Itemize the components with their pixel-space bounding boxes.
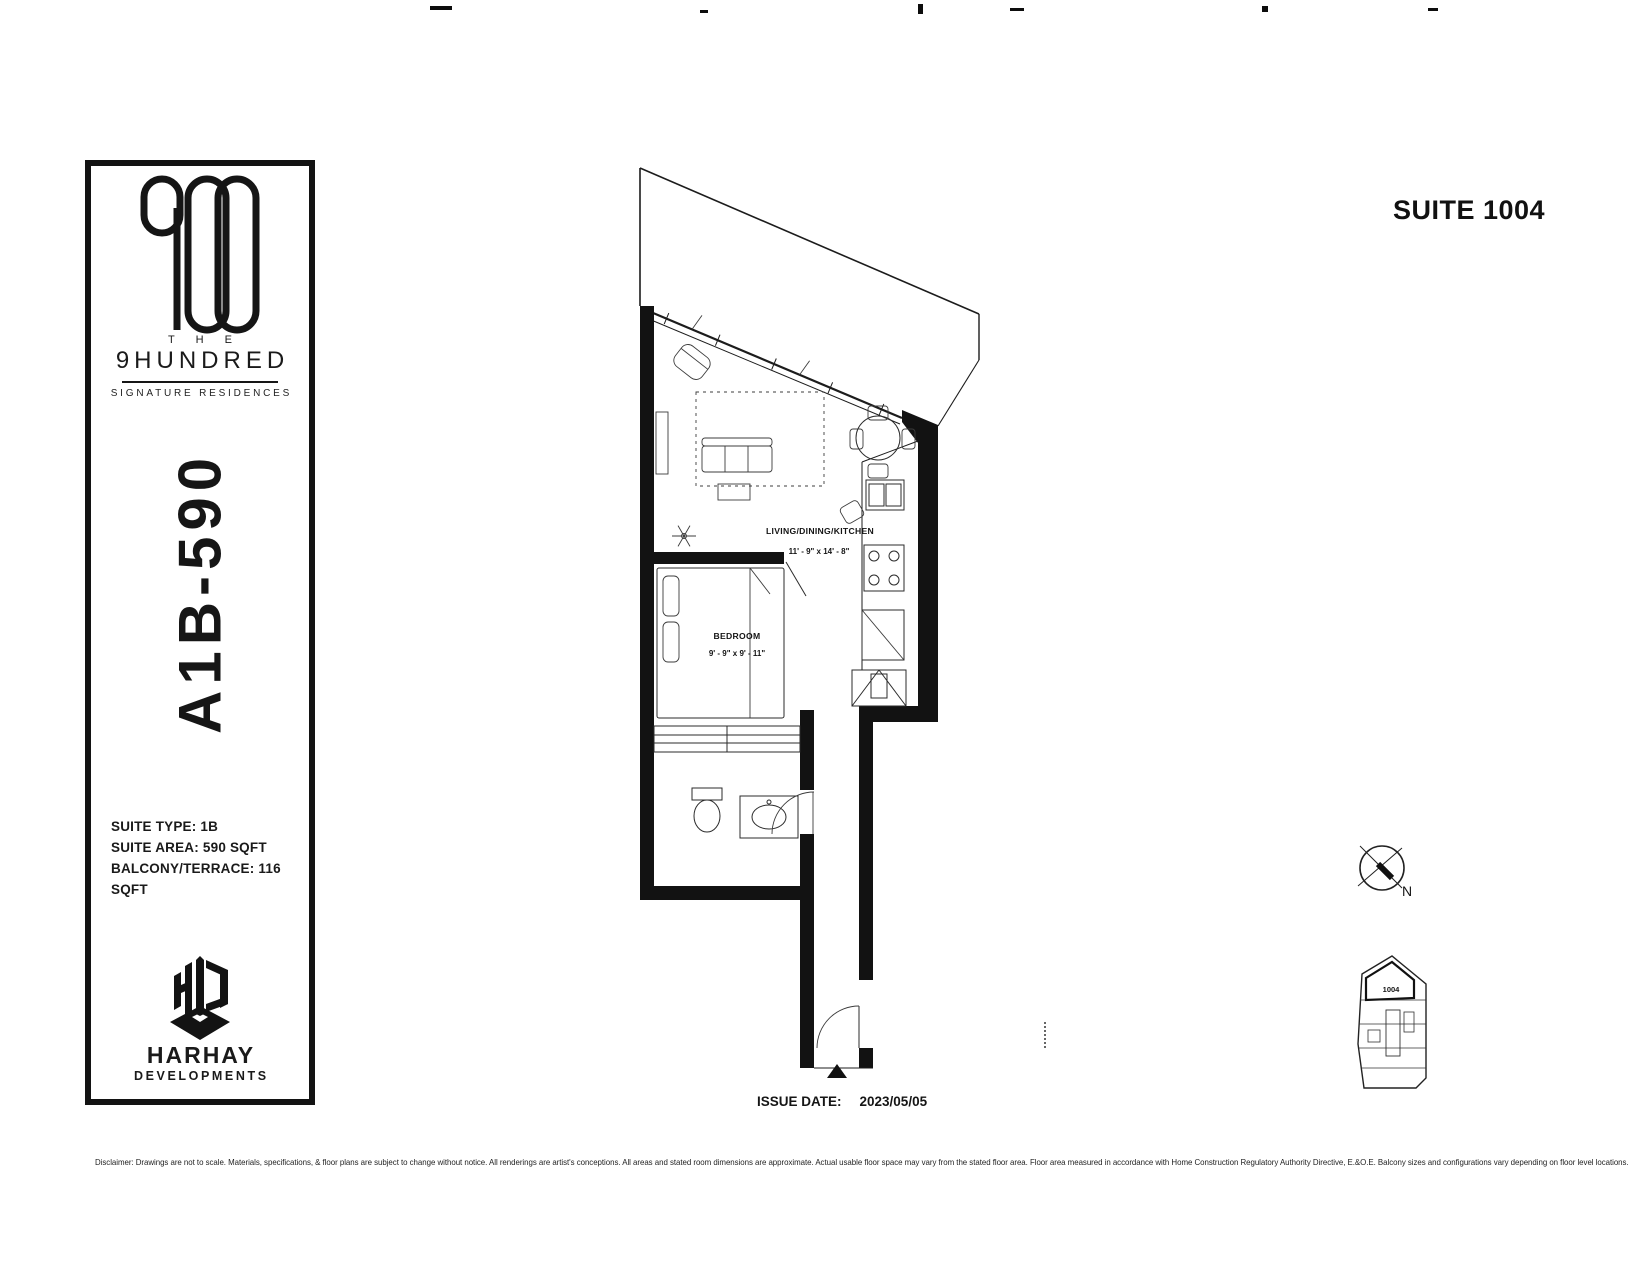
issue-date-value: 2023/05/05: [860, 1094, 928, 1109]
bedroom-door: [786, 562, 806, 596]
unit-code-vertical: A1B-590: [91, 438, 309, 748]
north-label: N: [1402, 883, 1412, 899]
terrace-outline: [640, 168, 979, 426]
plant-icon: [672, 526, 696, 547]
bedroom-dims: 9' - 9" x 9' - 11": [709, 649, 766, 658]
brand-divider: [122, 381, 278, 383]
suite-details: SUITE TYPE: 1B SUITE AREA: 590 SQFT BALC…: [111, 816, 309, 900]
suite-type: SUITE TYPE: 1B: [111, 816, 309, 837]
living-dims: 11' - 9" x 14' - 8": [789, 547, 850, 556]
brand-tagline: SIGNATURE RESIDENCES: [91, 388, 309, 399]
brand-the: T H E: [91, 334, 309, 346]
bedroom-closet: [654, 726, 800, 752]
bathroom-fixtures: [692, 788, 814, 838]
suite-balcony: BALCONY/TERRACE: 116 SQFT: [111, 858, 309, 900]
entry-marker: [827, 1064, 847, 1078]
kitchen-fixtures: [852, 441, 918, 706]
the-ninehundred-logo-icon: [139, 174, 261, 334]
entry-door: [817, 1006, 859, 1078]
living-label: LIVING/DINING/KITCHEN: [766, 526, 874, 536]
suite-area: SUITE AREA: 590 SQFT: [111, 837, 309, 858]
issue-date-label: ISSUE DATE:: [757, 1094, 842, 1109]
brand-name: 9HUNDRED: [91, 347, 309, 375]
page-title-suite: SUITE 1004: [1393, 195, 1545, 226]
harhay-hc-logo-icon: [152, 942, 248, 1042]
bed: [657, 568, 784, 718]
faint-margin-mark: [1044, 1022, 1046, 1048]
room-labels: LIVING/DINING/KITCHEN 11' - 9" x 14' - 8…: [709, 526, 874, 658]
bedroom-label: BEDROOM: [714, 631, 761, 641]
disclaimer-text: Disclaimer: Drawings are not to scale. M…: [95, 1157, 1629, 1167]
living-furniture: [656, 341, 915, 546]
developer-name: HARHAY: [91, 1042, 309, 1069]
issue-date: ISSUE DATE:2023/05/05: [757, 1094, 927, 1109]
keyplan-suite-label: 1004: [1383, 985, 1401, 994]
window-wall: [644, 310, 902, 424]
branding-sidebar: T H E 9HUNDRED SIGNATURE RESIDENCES A1B-…: [85, 160, 315, 1105]
developer-sub: DEVELOPMENTS: [91, 1069, 309, 1083]
floorplan-drawing: LIVING/DINING/KITCHEN 11' - 9" x 14' - 8…: [600, 150, 1080, 1100]
north-compass-icon: N: [1344, 838, 1424, 906]
floorplan-sheet: { "header": { "suite_title": "SUITE 1004…: [0, 0, 1650, 1275]
keyplan: 1004: [1352, 952, 1432, 1092]
exterior-walls: [640, 306, 938, 1068]
